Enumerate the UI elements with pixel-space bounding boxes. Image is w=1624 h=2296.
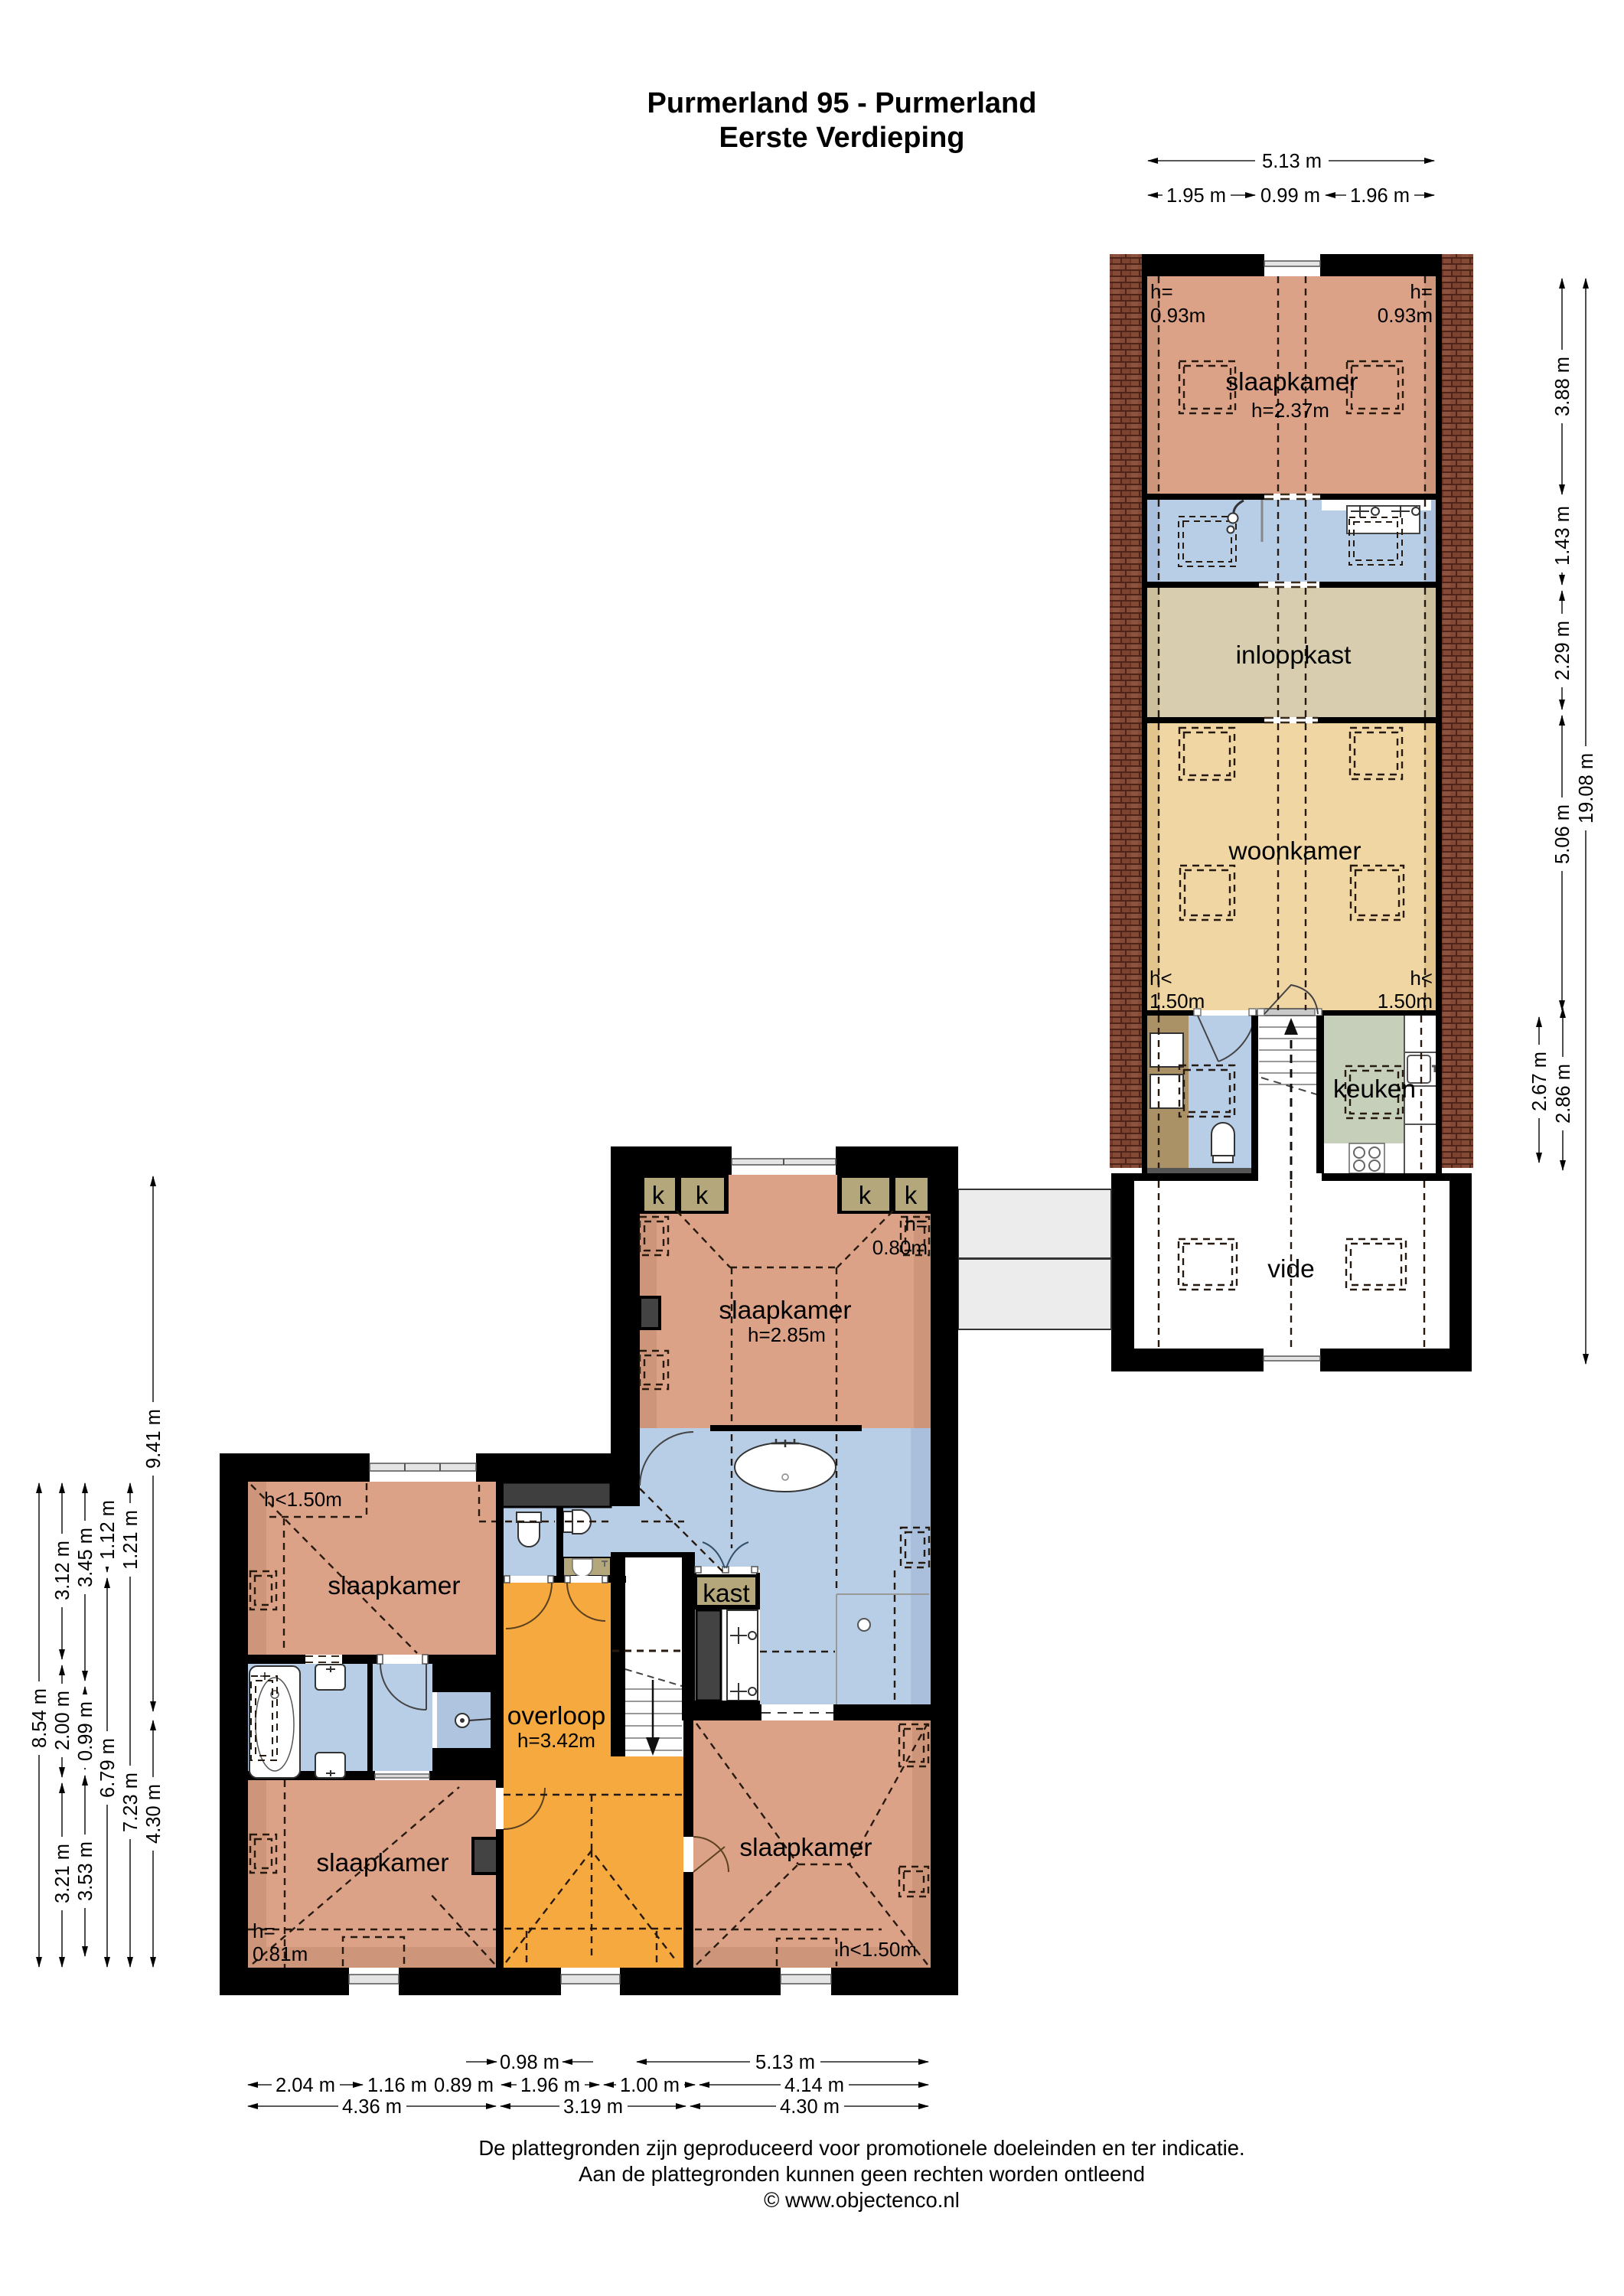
svg-text:3.19 m: 3.19 m bbox=[563, 2096, 623, 2118]
svg-text:1.95 m: 1.95 m bbox=[1166, 185, 1226, 207]
svg-text:h=: h= bbox=[253, 1919, 276, 1942]
svg-text:h<: h< bbox=[1150, 967, 1172, 990]
svg-text:h<1.50m: h<1.50m bbox=[264, 1488, 342, 1511]
svg-text:3.45 m: 3.45 m bbox=[75, 1528, 96, 1587]
svg-text:1.50m: 1.50m bbox=[1378, 990, 1433, 1013]
svg-text:19.08 m: 19.08 m bbox=[1576, 753, 1597, 823]
svg-text:2.86 m: 2.86 m bbox=[1553, 1064, 1574, 1124]
svg-text:h=: h= bbox=[1150, 280, 1173, 303]
svg-text:2.67 m: 2.67 m bbox=[1529, 1052, 1551, 1111]
svg-text:4.30 m: 4.30 m bbox=[780, 2096, 840, 2118]
svg-text:Purmerland 95 - Purmerland: Purmerland 95 - Purmerland bbox=[647, 87, 1037, 119]
svg-text:h=3.42m: h=3.42m bbox=[517, 1729, 595, 1752]
svg-text:5.13 m: 5.13 m bbox=[1262, 151, 1322, 172]
svg-text:Aan de plattegronden kunnen ge: Aan de plattegronden kunnen geen rechten… bbox=[579, 2162, 1145, 2186]
svg-text:h=: h= bbox=[1410, 280, 1433, 303]
svg-text:0.80m: 0.80m bbox=[872, 1236, 928, 1259]
svg-text:keuken: keuken bbox=[1333, 1075, 1416, 1104]
svg-text:0.93m: 0.93m bbox=[1150, 304, 1205, 327]
svg-text:4.30 m: 4.30 m bbox=[143, 1784, 165, 1844]
svg-text:De plattegronden zijn geproduc: De plattegronden zijn geproduceerd voor … bbox=[478, 2136, 1244, 2160]
svg-text:slaapkamer: slaapkamer bbox=[719, 1296, 851, 1325]
svg-text:1.50m: 1.50m bbox=[1150, 990, 1205, 1013]
svg-text:k: k bbox=[652, 1181, 665, 1209]
svg-text:1.43 m: 1.43 m bbox=[1552, 506, 1573, 566]
svg-text:woonkamer: woonkamer bbox=[1228, 837, 1361, 866]
svg-text:2.00 m: 2.00 m bbox=[52, 1691, 73, 1750]
svg-text:0.81m: 0.81m bbox=[253, 1942, 308, 1965]
svg-text:1.96 m: 1.96 m bbox=[1350, 185, 1410, 207]
svg-text:kast: kast bbox=[703, 1580, 750, 1608]
svg-text:3.12 m: 3.12 m bbox=[52, 1541, 73, 1600]
svg-text:3.53 m: 3.53 m bbox=[75, 1841, 96, 1901]
svg-text:k: k bbox=[696, 1181, 709, 1209]
svg-text:3.21 m: 3.21 m bbox=[52, 1844, 73, 1903]
svg-text:0.99 m: 0.99 m bbox=[75, 1701, 96, 1761]
svg-text:0.98 m: 0.98 m bbox=[500, 2052, 559, 2073]
svg-text:Eerste Verdieping: Eerste Verdieping bbox=[719, 122, 964, 154]
svg-text:8.54 m: 8.54 m bbox=[29, 1688, 51, 1748]
svg-text:9.41 m: 9.41 m bbox=[143, 1409, 165, 1469]
svg-text:overloop: overloop bbox=[507, 1702, 606, 1730]
svg-text:1.12 m: 1.12 m bbox=[97, 1500, 119, 1560]
svg-text:6.79 m: 6.79 m bbox=[97, 1738, 119, 1798]
svg-text:h=: h= bbox=[905, 1212, 928, 1235]
svg-text:0.93m: 0.93m bbox=[1378, 304, 1433, 327]
svg-text:2.04 m: 2.04 m bbox=[276, 2075, 335, 2096]
svg-text:7.23 m: 7.23 m bbox=[120, 1773, 142, 1832]
svg-text:4.14 m: 4.14 m bbox=[784, 2075, 844, 2096]
svg-text:slaapkamer: slaapkamer bbox=[1225, 368, 1358, 396]
svg-text:inloopkast: inloopkast bbox=[1236, 641, 1352, 670]
svg-text:4.36 m: 4.36 m bbox=[342, 2096, 402, 2118]
svg-text:© www.objectenco.nl: © www.objectenco.nl bbox=[764, 2188, 960, 2212]
svg-text:slaapkamer: slaapkamer bbox=[328, 1572, 460, 1600]
svg-text:2.29 m: 2.29 m bbox=[1552, 621, 1573, 680]
svg-text:5.06 m: 5.06 m bbox=[1552, 804, 1573, 864]
svg-text:1.16 m: 1.16 m bbox=[367, 2075, 427, 2096]
svg-text:5.13 m: 5.13 m bbox=[755, 2052, 815, 2073]
svg-text:h<1.50m: h<1.50m bbox=[839, 1938, 917, 1961]
svg-text:h=2.37m: h=2.37m bbox=[1251, 399, 1329, 422]
svg-text:h<: h< bbox=[1410, 967, 1433, 990]
svg-text:3.88 m: 3.88 m bbox=[1552, 357, 1573, 416]
svg-text:1.21 m: 1.21 m bbox=[120, 1510, 142, 1570]
svg-text:1.96 m: 1.96 m bbox=[520, 2075, 580, 2096]
svg-text:vide: vide bbox=[1267, 1255, 1314, 1283]
svg-text:k: k bbox=[905, 1181, 918, 1209]
svg-text:slaapkamer: slaapkamer bbox=[739, 1834, 872, 1862]
svg-text:h=2.85m: h=2.85m bbox=[748, 1323, 826, 1346]
svg-text:slaapkamer: slaapkamer bbox=[316, 1849, 448, 1877]
svg-text:1.00 m: 1.00 m bbox=[620, 2075, 680, 2096]
svg-text:k: k bbox=[859, 1181, 872, 1209]
svg-text:0.99 m: 0.99 m bbox=[1260, 185, 1320, 207]
svg-text:0.89 m: 0.89 m bbox=[434, 2075, 494, 2096]
